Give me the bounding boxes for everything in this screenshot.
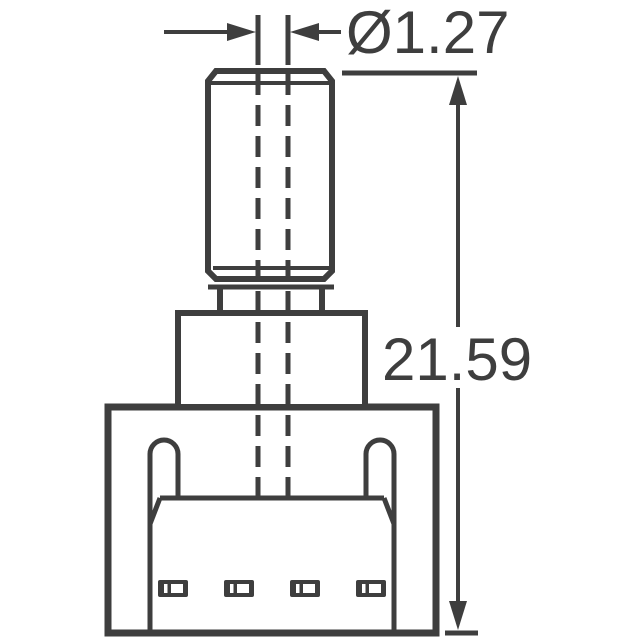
arrow-right-icon xyxy=(227,23,256,41)
terminal-slit xyxy=(362,584,366,593)
arrow-down-icon xyxy=(449,601,467,630)
arrow-up-icon xyxy=(449,76,467,105)
technical-drawing: Ø1.27 21.59 xyxy=(0,0,640,640)
terminal-slot xyxy=(356,580,386,597)
height-label: 21.59 xyxy=(382,326,532,393)
diameter-dimension: Ø1.27 xyxy=(164,0,509,66)
bushing-block xyxy=(178,313,365,407)
terminal-window xyxy=(237,584,249,593)
terminal-window xyxy=(303,584,315,593)
terminal-window xyxy=(369,584,381,593)
terminal-slot xyxy=(158,580,188,597)
terminal-slot xyxy=(290,580,320,597)
terminal-slot xyxy=(224,580,254,597)
shaft xyxy=(208,71,334,287)
drawing-canvas: Ø1.27 21.59 xyxy=(0,0,640,640)
terminal-window xyxy=(171,584,183,593)
terminal-slit xyxy=(230,584,234,593)
terminal-slit xyxy=(164,584,168,593)
diameter-label: Ø1.27 xyxy=(346,0,509,66)
shaft-outline xyxy=(208,71,332,279)
arrow-left-icon xyxy=(290,23,319,41)
terminal-slit xyxy=(296,584,300,593)
bushing-outline xyxy=(178,313,365,407)
